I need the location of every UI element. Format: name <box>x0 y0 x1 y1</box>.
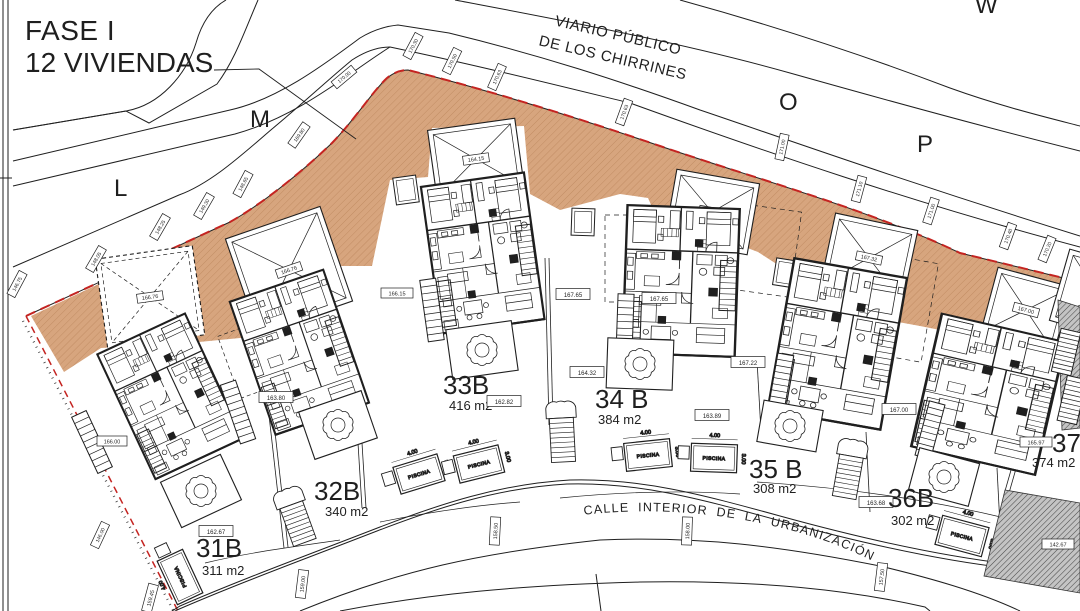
svg-text:166.15: 166.15 <box>388 291 405 297</box>
svg-text:162.67: 162.67 <box>207 530 226 536</box>
svg-text:M: M <box>250 106 270 133</box>
svg-text:W: W <box>975 0 998 19</box>
svg-text:167.00: 167.00 <box>890 408 909 414</box>
svg-text:158.50: 158.50 <box>493 523 500 540</box>
svg-text:34 B: 34 B <box>595 384 649 414</box>
svg-text:163.89: 163.89 <box>703 414 722 420</box>
svg-text:340 m2: 340 m2 <box>325 504 368 519</box>
svg-text:164.32: 164.32 <box>578 371 597 377</box>
svg-text:4.00: 4.00 <box>709 433 720 439</box>
svg-text:32B: 32B <box>314 476 360 506</box>
svg-text:167.65: 167.65 <box>564 293 583 299</box>
svg-text:L: L <box>114 175 127 202</box>
svg-text:165.97: 165.97 <box>1027 440 1044 446</box>
svg-text:P: P <box>917 131 933 158</box>
svg-text:162.82: 162.82 <box>495 400 514 406</box>
svg-text:302 m2: 302 m2 <box>891 513 934 528</box>
svg-text:163.68: 163.68 <box>867 501 886 507</box>
svg-text:416 m2: 416 m2 <box>449 398 492 413</box>
svg-text:384 m2: 384 m2 <box>598 412 641 427</box>
svg-text:36B: 36B <box>888 483 934 513</box>
svg-text:FASE I: FASE I <box>25 15 115 46</box>
svg-text:PISCINA: PISCINA <box>702 456 725 463</box>
svg-text:308 m2: 308 m2 <box>753 481 796 496</box>
svg-text:374 m2: 374 m2 <box>1032 455 1075 470</box>
svg-text:163.80: 163.80 <box>267 396 286 402</box>
svg-text:37: 37 <box>1052 428 1080 458</box>
svg-text:35 B: 35 B <box>749 454 803 484</box>
svg-text:158.00: 158.00 <box>685 523 692 540</box>
svg-text:142.67: 142.67 <box>1049 542 1066 548</box>
svg-text:31B: 31B <box>196 533 242 563</box>
svg-text:167.22: 167.22 <box>739 361 758 367</box>
svg-text:167.65: 167.65 <box>650 297 669 303</box>
svg-text:311 m2: 311 m2 <box>202 563 244 578</box>
svg-text:4.00: 4.00 <box>640 430 651 437</box>
svg-text:166.00: 166.00 <box>104 439 121 445</box>
svg-text:33B: 33B <box>443 370 489 400</box>
svg-text:O: O <box>779 89 798 116</box>
svg-text:3.00: 3.00 <box>740 454 746 465</box>
svg-text:12 VIVIENDAS: 12 VIVIENDAS <box>25 47 213 78</box>
